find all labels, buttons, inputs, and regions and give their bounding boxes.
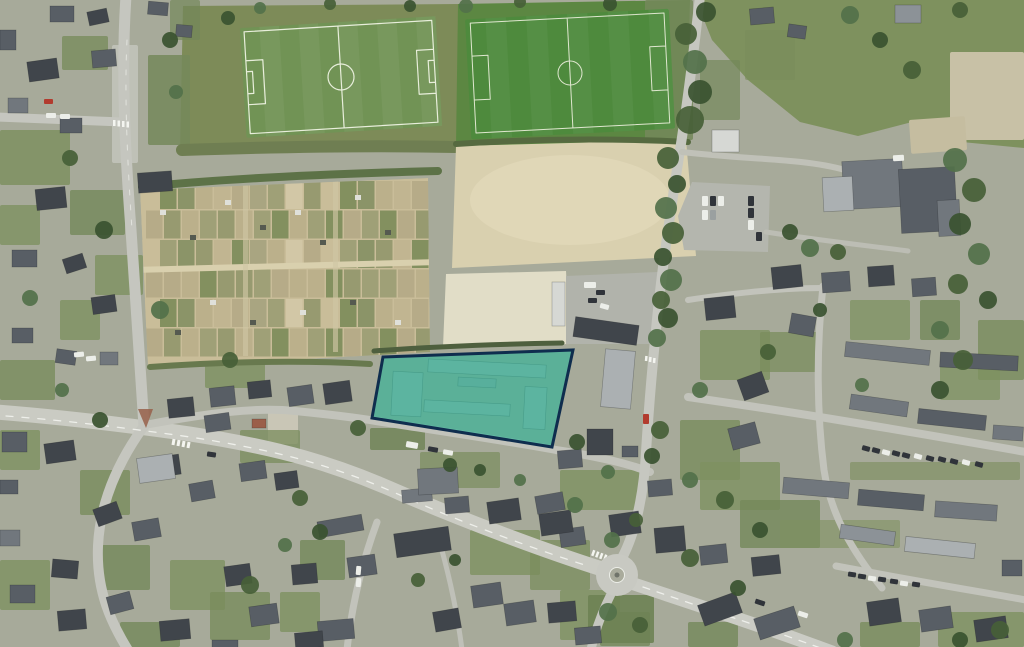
allotment-plot [160,240,177,268]
house [867,265,894,287]
tree [629,513,643,527]
tree [601,465,615,479]
tree [449,554,461,566]
allotment-plot [304,181,321,209]
house [137,171,172,193]
house [787,24,807,39]
car [748,220,754,230]
allotment-plot [146,270,163,298]
house [287,384,314,406]
tree [411,573,425,587]
house [239,460,267,481]
house [8,98,28,113]
house [12,328,33,343]
garden-shed [395,320,401,325]
allotment-plot [272,270,289,298]
house [252,419,266,428]
parking-lot-school [678,182,770,252]
house [712,130,739,152]
tree [569,434,585,450]
tree [682,472,698,488]
tree [903,61,921,79]
car [46,113,56,118]
orthophoto-canvas[interactable] [0,0,1024,647]
tree [278,538,292,552]
tree [655,197,677,219]
tree [654,248,672,266]
tree [660,269,682,291]
house [167,397,195,419]
allotment-plot [196,240,213,268]
garden-shed [260,225,266,230]
garden-shed [295,210,301,215]
allotment-plot [178,240,195,268]
tree [92,412,108,428]
house [294,631,323,647]
house [557,449,582,469]
allotment-plot [164,211,181,239]
tree [782,224,798,240]
tree [962,178,986,202]
garden-shed [160,210,166,215]
house [91,49,116,68]
allotment-plot [254,329,271,357]
allotment-plot [376,299,393,327]
car [60,114,70,119]
house [704,295,736,320]
tree [931,381,949,399]
car [584,282,596,288]
house [323,380,353,405]
house [699,544,728,566]
house [749,7,774,25]
car [710,210,716,220]
garden-shed [350,300,356,305]
crosswalk [127,122,130,128]
house [552,282,565,326]
house [601,349,636,409]
house [444,496,469,514]
house [471,582,504,608]
car [44,99,53,104]
house [822,176,854,212]
house [136,454,175,484]
car [596,290,605,295]
allotment-plot [182,211,199,239]
garden-shed [355,195,361,200]
allotment-plot [358,299,375,327]
allotment-plot [290,270,307,298]
allotment-plot [344,211,361,239]
house [274,470,299,490]
garden-patch [745,30,795,80]
house [993,425,1024,441]
house [0,530,20,546]
hedge-row [182,146,456,150]
house [35,186,67,210]
allotment-plot [344,270,361,298]
tree [688,80,712,104]
tree [22,290,38,306]
tree [241,576,259,594]
allotment-plot [214,299,231,327]
tree [443,458,457,472]
house [2,432,27,452]
allotment-plot [200,211,217,239]
crosswalk [118,121,121,127]
house [821,271,850,293]
car [748,208,754,218]
tree [943,148,967,172]
tree [312,524,328,540]
house [574,626,601,645]
tree [752,522,768,538]
house [55,349,77,366]
garden-shed [320,240,326,245]
house [771,264,803,289]
tree [95,221,113,239]
house [27,58,59,82]
house [176,24,193,37]
house [622,446,638,457]
tree [604,532,620,548]
car [756,232,762,241]
car [718,196,724,206]
allotment-plot [398,211,415,239]
tree [657,147,679,169]
allotment-plot [200,329,217,357]
allotment-plot [214,240,231,268]
garden-shed [250,320,256,325]
garden-shed [225,200,231,205]
allotment-plot [412,299,429,327]
sand-arena-center [470,155,670,245]
tree [62,150,78,166]
crosswalk [113,120,116,126]
garden-patch [0,360,55,400]
crosswalk [645,356,648,361]
allotment-plot [362,270,379,298]
house [50,6,74,22]
tree [692,382,708,398]
allotment-plot [254,211,271,239]
tree [801,239,819,257]
allotment-plot [394,181,411,209]
tree [658,308,678,328]
house [504,600,537,626]
house [204,412,231,432]
house [0,30,16,50]
allotment-plot [308,211,325,239]
tree [151,301,169,319]
car [710,196,716,206]
allotment-plot [146,329,163,357]
tree [292,490,308,506]
tree [813,303,827,317]
tree [221,11,235,25]
allotment-plot [182,270,199,298]
car [356,578,362,587]
house [751,555,781,577]
tree [169,85,183,99]
car [748,196,754,206]
tree [968,243,990,265]
allotment-plot [412,181,429,209]
allotment-plot [308,270,325,298]
tree [948,274,968,294]
allotment-plot [308,329,325,357]
garden-shed [210,300,216,305]
house [159,619,191,642]
garden-patch [850,462,1020,480]
car [588,298,597,303]
tree [991,621,1009,639]
tree [841,6,859,24]
allotment-plot [142,240,159,268]
allotment-plot [380,270,397,298]
house [60,118,82,133]
house [911,277,936,297]
tree [716,491,734,509]
tree [760,344,776,360]
tree [567,497,583,513]
house [189,480,216,502]
house [209,386,236,408]
house [51,559,78,579]
garden-patch [280,592,320,632]
roundabout-center [615,573,620,578]
allotment-plot [218,211,235,239]
house [919,606,954,632]
tree [662,222,684,244]
house [12,250,37,267]
allotment-plot [290,329,307,357]
garden-shed [175,330,181,335]
house [91,294,117,314]
gravel-area [909,116,967,154]
crosswalk [122,121,125,127]
garden-patch [850,300,910,340]
tree [855,378,869,392]
house [587,429,613,455]
tree [55,383,69,397]
garden-patch [100,545,150,590]
tree [676,106,704,134]
garden-patch [860,622,920,647]
allotment-plot [178,299,195,327]
aerial-map-viewport[interactable] [0,0,1024,647]
allotment-plot [286,181,303,209]
car [643,414,649,424]
allotment-plot [398,270,415,298]
pitch-right [465,9,675,140]
house [647,479,672,497]
house [291,563,318,585]
tree [404,0,416,12]
sand-court [443,271,570,347]
aerial-map[interactable] [0,0,1024,647]
tree [222,352,238,368]
allotment-plot [200,270,217,298]
house [44,440,76,464]
house [1002,560,1022,576]
tree [651,421,669,439]
allotment-plot [254,270,271,298]
car [356,566,362,575]
allotment-plot [182,329,199,357]
tree [675,23,697,45]
allotment-plot [344,329,361,357]
crosswalk [653,358,656,363]
tree [681,549,699,567]
house [247,380,272,399]
allotment-plot [362,211,379,239]
allotment-plot [304,299,321,327]
allotment-plot [398,329,415,357]
tree [668,175,686,193]
car [86,356,96,362]
garden-shed [385,230,391,235]
garden-patch [688,622,738,647]
allotment-plot [268,181,285,209]
allotment-plot [268,299,285,327]
tree [162,32,178,48]
house [432,608,461,632]
tree [953,350,973,370]
house [249,603,280,627]
tree [632,617,648,633]
tree [872,32,888,48]
garden-patch [0,205,40,245]
house [347,554,378,578]
house [100,352,118,365]
tree [474,464,486,476]
pitch-left [240,16,442,138]
house [895,5,921,23]
car [74,352,84,358]
garden-shed [300,310,306,315]
allotment-plot [218,270,235,298]
tree [652,291,670,309]
tree [514,474,526,486]
tree [599,603,617,621]
car [702,210,708,220]
allotment-plot [340,181,357,209]
tree [949,213,971,235]
tree [952,2,968,18]
tree [979,291,997,309]
allotment-plot [272,329,289,357]
tree [254,2,266,14]
garden-patch [0,130,70,185]
garden-shed [190,235,196,240]
car [893,155,904,162]
house [212,640,238,647]
garden-patch [148,55,190,145]
tree [696,2,716,22]
crosswalk [649,357,652,362]
house [147,1,168,16]
tree [931,321,949,339]
allotment-plot [272,211,289,239]
allotment-gardens [140,178,433,368]
allotment-plot [376,181,393,209]
tree [830,244,846,260]
allotment-plot [164,270,181,298]
tree [730,580,746,596]
house [0,480,18,494]
house [788,313,816,337]
house [57,609,87,631]
car [702,196,708,206]
tree [648,329,666,347]
tree [644,448,660,464]
tree [350,420,366,436]
house [539,510,574,536]
house [487,498,522,524]
house [10,585,35,603]
tree [683,50,707,74]
house [547,601,577,623]
house [654,526,686,554]
house [866,598,901,626]
